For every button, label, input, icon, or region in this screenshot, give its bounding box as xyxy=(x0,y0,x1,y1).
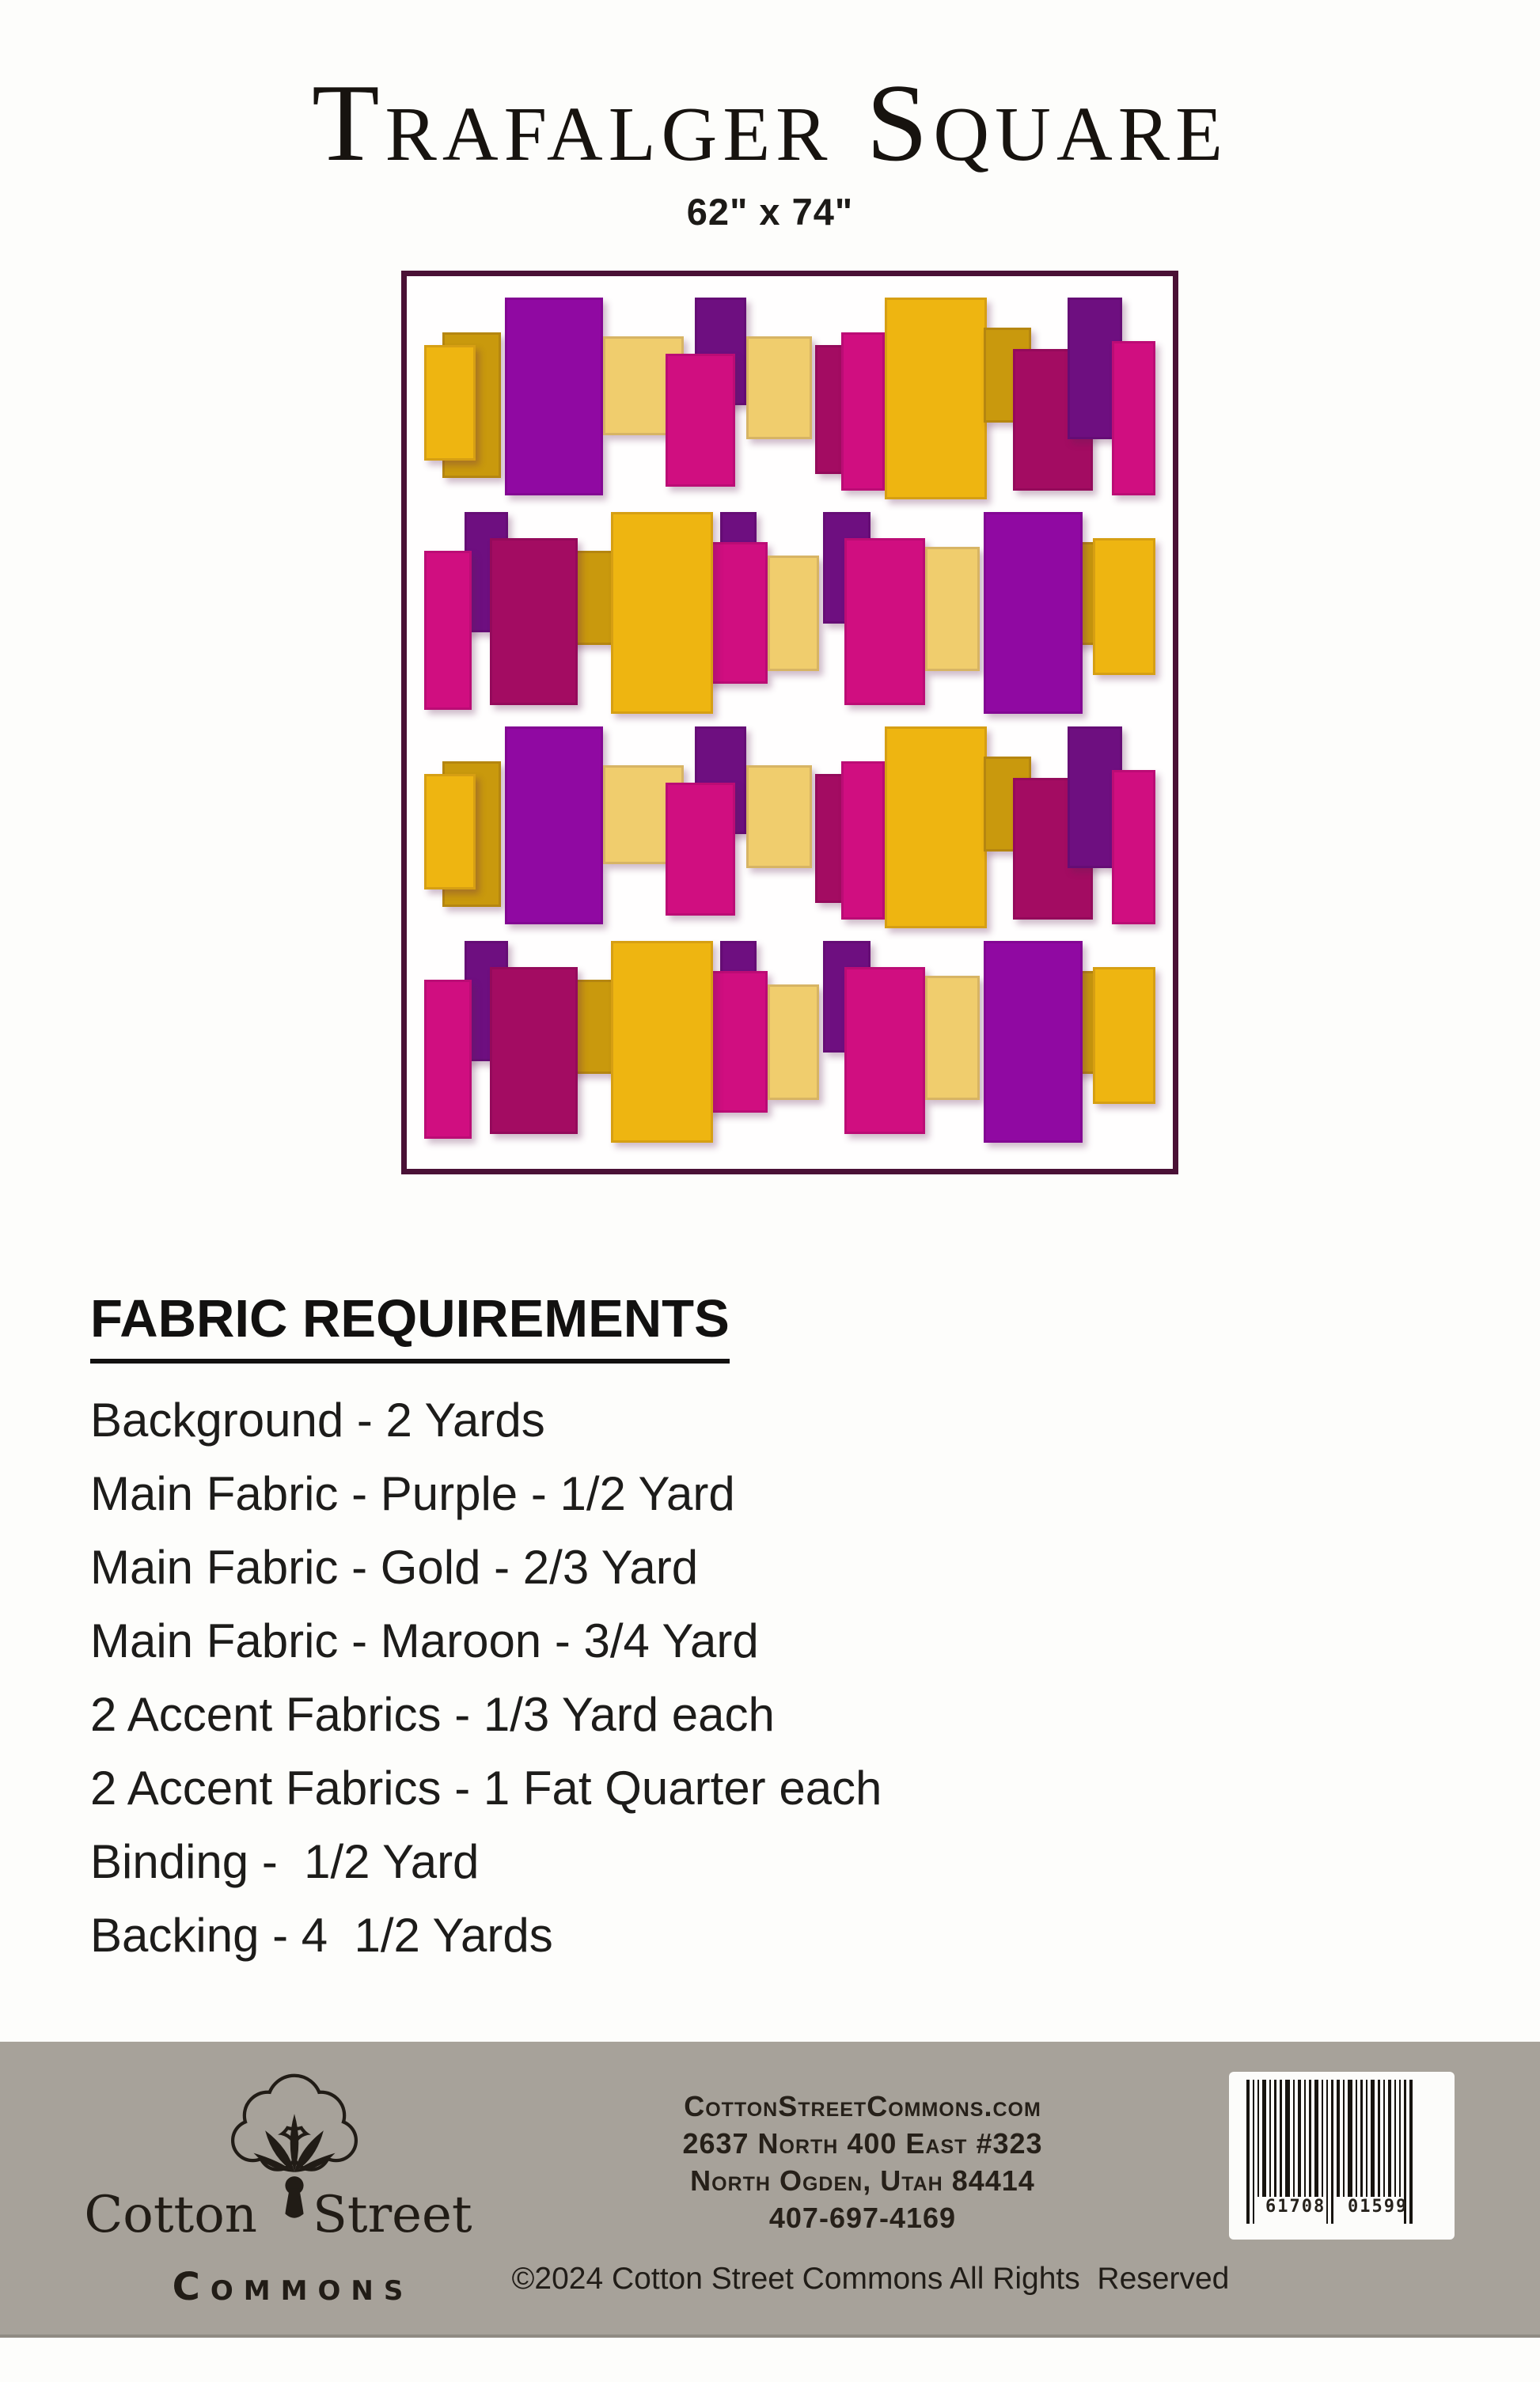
quilt-patch xyxy=(768,556,819,671)
barcode-right-digits: 01599 xyxy=(1348,2197,1408,2217)
quilt-patch xyxy=(666,354,735,487)
contact-block: CottonStreetCommons.com 2637 North 400 E… xyxy=(601,2088,1124,2236)
barcode-bar xyxy=(1326,2080,1328,2224)
copyright-line: ©2024 Cotton Street Commons All Rights R… xyxy=(431,2262,1310,2297)
barcode-bar xyxy=(1262,2080,1266,2197)
barcode-bar xyxy=(1285,2080,1290,2197)
quilt-patch xyxy=(505,726,604,924)
barcode-bar xyxy=(1388,2080,1391,2197)
barcode-bar xyxy=(1371,2080,1375,2197)
quilt-patch xyxy=(1112,770,1155,924)
quilt-patch xyxy=(490,538,578,705)
barcode-bar xyxy=(1356,2080,1357,2197)
fabric-requirement-gold: Main Fabric - Gold - 2/3 Yard xyxy=(90,1530,882,1604)
barcode-bar xyxy=(1314,2080,1318,2197)
quilt-patch xyxy=(984,512,1083,714)
quilt-patch xyxy=(746,765,812,868)
barcode-bar xyxy=(1399,2080,1401,2197)
quilt-patch xyxy=(746,336,812,439)
quilt-patch xyxy=(841,761,885,920)
barcode-bar xyxy=(1331,2080,1333,2224)
barcode-bar xyxy=(1360,2080,1363,2197)
quilt-patch xyxy=(611,512,713,714)
barcode-bar xyxy=(1383,2080,1385,2197)
quilt-patch xyxy=(844,967,925,1134)
quilt-patch xyxy=(925,547,980,671)
quilt-patch xyxy=(706,971,768,1113)
quilt-patch xyxy=(424,980,472,1139)
contact-street-address: 2637 North 400 East #323 xyxy=(601,2125,1124,2162)
fabric-requirement-binding: Binding - 1/2 Yard xyxy=(90,1825,882,1898)
quilt-patch xyxy=(611,941,713,1143)
quilt-area xyxy=(424,294,1155,1151)
quilt-patch xyxy=(666,783,735,916)
barcode-bar xyxy=(1343,2080,1345,2197)
contact-city-state: North Ogden, Utah 84414 xyxy=(601,2162,1124,2199)
barcode-bar xyxy=(1280,2080,1282,2197)
contact-website: CottonStreetCommons.com xyxy=(601,2088,1124,2125)
quilt-patch xyxy=(885,726,987,928)
quilt-patch xyxy=(706,542,768,684)
quilt-patch xyxy=(505,298,604,495)
quilt-patch xyxy=(1093,967,1155,1104)
barcode-bar xyxy=(1293,2080,1295,2197)
page-title: Trafalger Square xyxy=(0,65,1540,181)
fabric-requirements-list: Background - 2 Yards Main Fabric - Purpl… xyxy=(90,1383,882,1972)
logo-word-street: Street xyxy=(313,2186,518,2244)
fabric-requirement-accent-fq: 2 Accent Fabrics - 1 Fat Quarter each xyxy=(90,1751,882,1825)
fabric-requirement-backing: Backing - 4 1/2 Yards xyxy=(90,1898,882,1972)
barcode: 61708 01599 xyxy=(1229,2072,1455,2240)
barcode-bar xyxy=(1298,2080,1301,2197)
barcode-left-digits: 61708 xyxy=(1265,2197,1326,2217)
contact-phone: 407-697-4169 xyxy=(601,2199,1124,2236)
barcode-bar xyxy=(1322,2080,1323,2197)
barcode-bar xyxy=(1409,2080,1413,2224)
quilt-image xyxy=(401,271,1178,1174)
barcode-bar xyxy=(1337,2080,1340,2197)
fabric-requirement-accent-third: 2 Accent Fabrics - 1/3 Yard each xyxy=(90,1678,882,1751)
logo-word-cotton: Cotton xyxy=(63,2186,257,2244)
barcode-bar xyxy=(1257,2080,1259,2197)
barcode-bar xyxy=(1394,2080,1396,2197)
quilt-patch xyxy=(885,298,987,499)
fabric-requirement-maroon: Main Fabric - Maroon - 3/4 Yard xyxy=(90,1604,882,1678)
barcode-bar xyxy=(1304,2080,1306,2197)
quilt-patch xyxy=(424,774,476,889)
barcode-bar xyxy=(1269,2080,1271,2197)
quilt-size-label: 62" x 74" xyxy=(0,190,1540,233)
quilt-patch xyxy=(984,941,1083,1143)
quilt-patch xyxy=(841,332,885,491)
quilt-patch xyxy=(844,538,925,705)
fabric-requirements-heading: FABRIC REQUIREMENTS xyxy=(90,1288,730,1364)
barcode-bar xyxy=(1366,2080,1367,2197)
barcode-bar xyxy=(1253,2080,1254,2224)
quilt-patch xyxy=(925,976,980,1100)
barcode-bar xyxy=(1274,2080,1276,2197)
quilt-patch xyxy=(1112,341,1155,495)
fabric-requirement-purple: Main Fabric - Purple - 1/2 Yard xyxy=(90,1457,882,1530)
barcode-bar xyxy=(1246,2080,1250,2224)
quilt-patch xyxy=(490,967,578,1134)
quilt-patch xyxy=(424,345,476,461)
barcode-bar xyxy=(1348,2080,1352,2197)
barcode-bar xyxy=(1378,2080,1380,2197)
footer-bar: Cotton Street Commons CottonStreetCommon… xyxy=(0,2042,1540,2338)
quilt-patch xyxy=(768,984,819,1100)
barcode-bar xyxy=(1309,2080,1311,2197)
fabric-requirement-background: Background - 2 Yards xyxy=(90,1383,882,1457)
quilt-patch xyxy=(1093,538,1155,675)
quilt-patch xyxy=(424,551,472,710)
